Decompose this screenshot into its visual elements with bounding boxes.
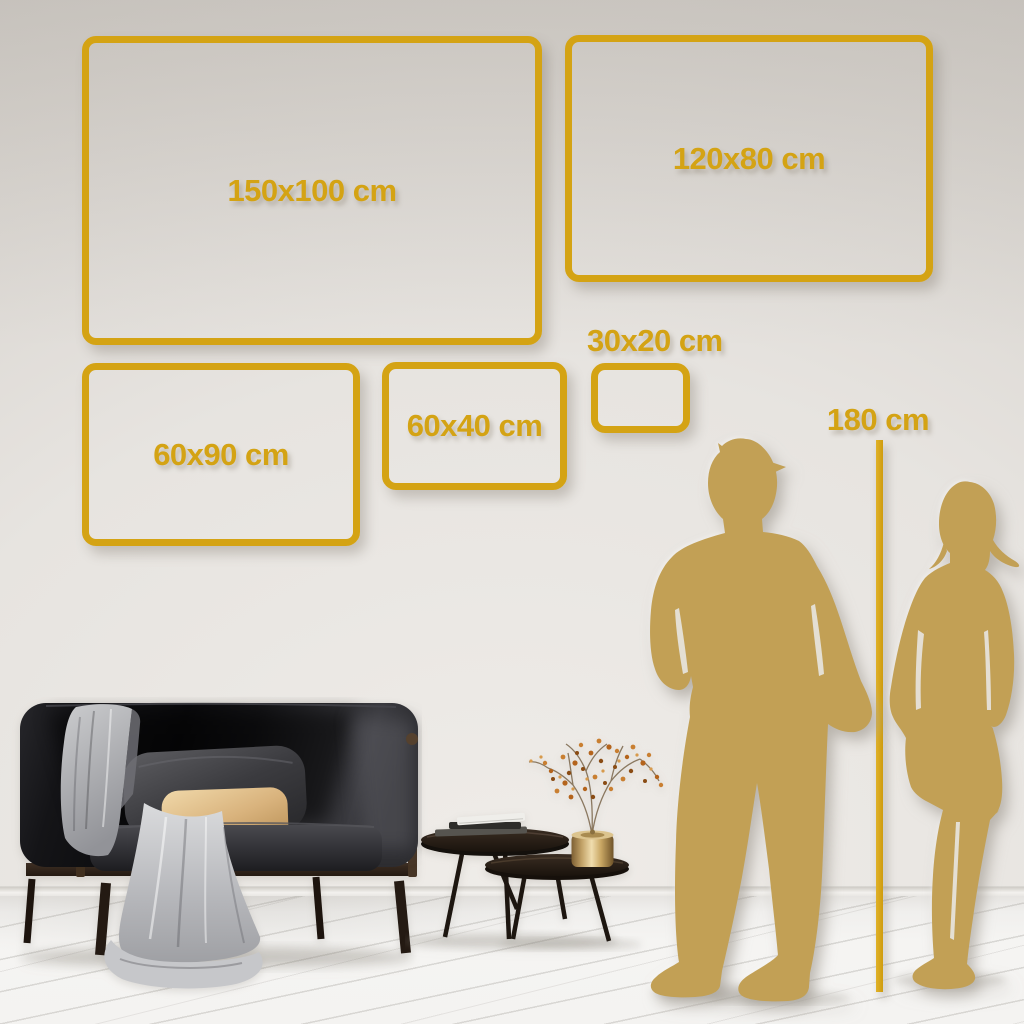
man-silhouette (645, 436, 885, 1006)
size-frame-120x80-cm: 120x80 cm (565, 35, 933, 282)
size-frame-label-120x80: 120x80 cm (673, 141, 825, 177)
size-frame-60x90-cm: 60x90 cm (82, 363, 360, 546)
woman-hair-lock (929, 542, 947, 569)
woman-silhouette (888, 470, 1024, 992)
table-large (421, 828, 569, 939)
height-reference-label: 180 cm (796, 402, 960, 438)
sofa-illustration (16, 697, 422, 1002)
size-frame-label-60x40: 60x40 cm (407, 408, 543, 444)
coffee-tables-illustration (405, 733, 677, 955)
size-guide-scene: 150x100 cm 120x80 cm 60x90 cm 60x40 cm 3… (0, 0, 1024, 1024)
books (435, 813, 527, 837)
plant (529, 739, 663, 835)
size-frame-150x100-cm: 150x100 cm (82, 36, 542, 345)
size-frame-label-150x100: 150x100 cm (227, 173, 396, 209)
table-floor-shadow-2 (498, 939, 642, 949)
man-hair-strand (771, 462, 786, 473)
size-frame-30x20-cm (591, 363, 690, 433)
brass-vase (572, 830, 614, 868)
size-frame-label-60x90: 60x90 cm (153, 437, 289, 473)
size-frame-60x40-cm: 60x40 cm (382, 362, 567, 490)
man-body (650, 438, 872, 1001)
size-frame-label-30x20: 30x20 cm (587, 323, 723, 359)
